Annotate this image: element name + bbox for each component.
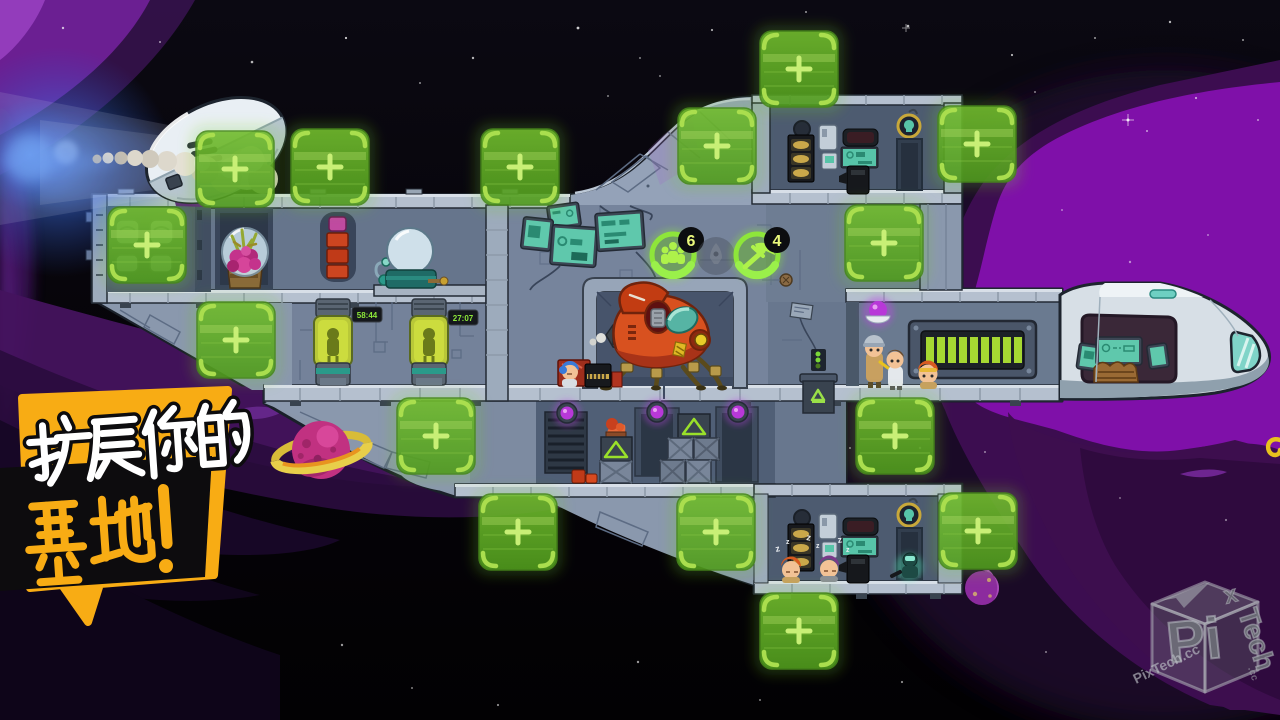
svg-text:58:44: 58:44 (357, 311, 378, 320)
svg-text:z: z (846, 547, 850, 554)
svg-text:4: 4 (773, 233, 782, 250)
svg-text:6: 6 (687, 233, 696, 250)
svg-text:z: z (816, 543, 820, 550)
svg-text:27:07: 27:07 (453, 314, 474, 323)
svg-text:z: z (786, 539, 790, 546)
